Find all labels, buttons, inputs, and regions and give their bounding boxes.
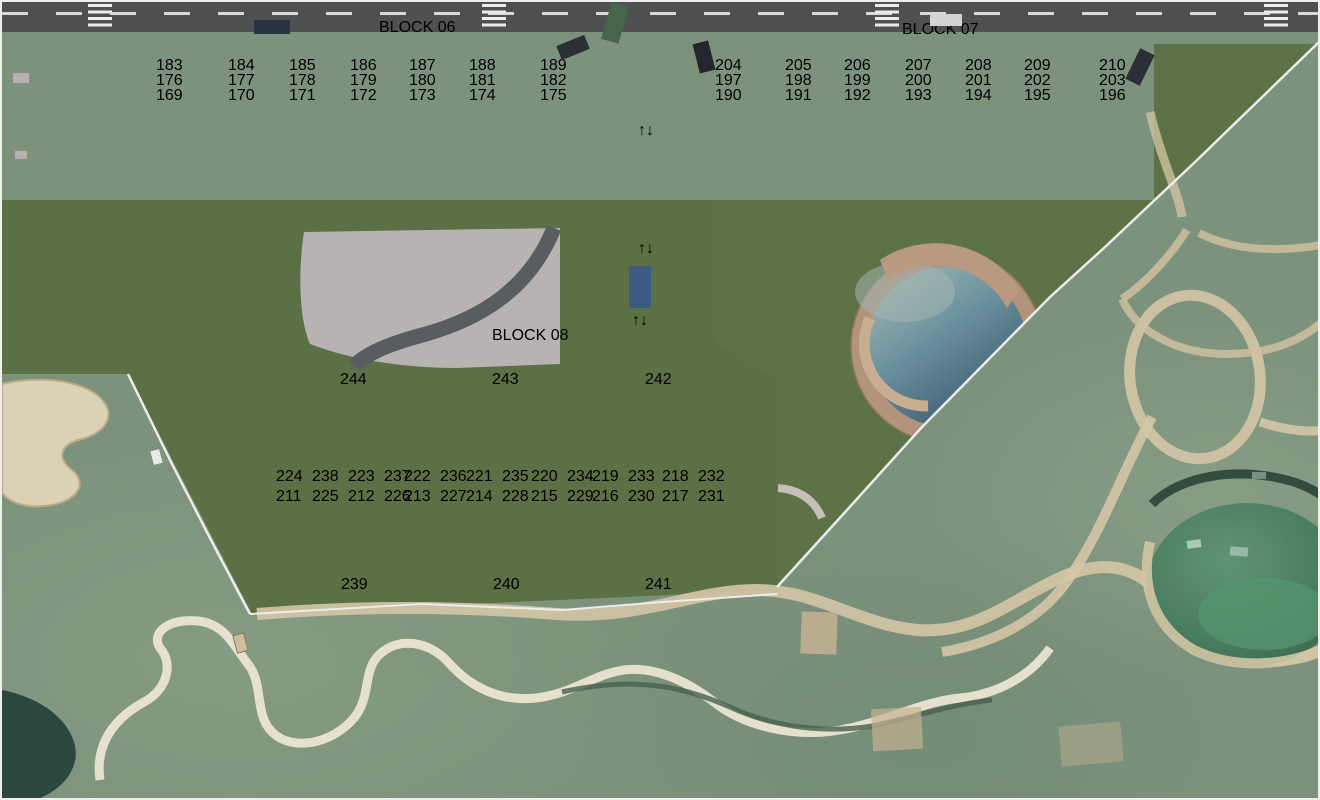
gym-equipment <box>390 242 393 255</box>
tree <box>123 169 141 187</box>
pedestrian <box>1242 49 1245 55</box>
palm-tree <box>1212 639 1244 671</box>
tree <box>265 35 291 61</box>
block-06-title: BLOCK 06 <box>379 19 455 37</box>
tree <box>0 19 21 41</box>
tree <box>156 352 172 368</box>
tree <box>351 33 377 59</box>
tree <box>420 586 440 606</box>
tree <box>1120 226 1148 254</box>
tree <box>1002 378 1026 402</box>
unit-chip-207[interactable]: 207 <box>905 57 939 70</box>
tree <box>570 598 590 618</box>
block07-roof-terraces <box>694 100 1156 164</box>
pedestrian <box>762 302 765 308</box>
tree <box>428 36 452 60</box>
unit-chip-195[interactable]: 195 <box>1024 87 1058 100</box>
walkway-hedge <box>336 473 364 493</box>
corner-pond <box>2 690 76 800</box>
tree <box>739 471 757 489</box>
site-plan-canvas[interactable]: ↑↓ ↑↓ ↑↓ BLOCK 06 BLOCK 07 BLOCK 08 183 <box>0 0 1320 800</box>
playground-slab <box>300 228 560 368</box>
tree <box>1157 87 1187 117</box>
tree <box>751 413 769 431</box>
pedestrian <box>884 47 887 53</box>
gym-equipment <box>522 282 530 285</box>
tree <box>142 380 162 400</box>
tree <box>1170 382 1194 406</box>
tree <box>1098 40 1122 64</box>
palm-tree <box>970 676 994 700</box>
umbrella-icon <box>1051 224 1073 246</box>
tree <box>186 460 206 480</box>
tree <box>184 32 212 60</box>
unit-chip-200[interactable]: 200 <box>905 72 939 85</box>
walkway-hedge <box>258 473 302 493</box>
tree <box>146 750 174 778</box>
unit-chip-243[interactable]: 243 <box>492 371 526 384</box>
main-road <box>2 2 1320 32</box>
pond-reflection <box>1230 546 1249 557</box>
umbrella-icon <box>966 227 988 249</box>
pedestrian <box>730 48 733 54</box>
pedestrian <box>642 137 645 143</box>
unit-chip-239[interactable]: 239 <box>341 576 375 589</box>
walkway-hedge <box>588 473 610 493</box>
tree <box>131 197 153 219</box>
block06-gardens <box>110 164 630 202</box>
umbrella-icon <box>797 229 819 251</box>
tree <box>1017 37 1043 63</box>
tree <box>140 782 164 800</box>
tee-box <box>1058 721 1123 766</box>
unit-chip-206[interactable]: 206 <box>844 57 878 70</box>
walkway-hedge <box>652 473 672 493</box>
sand-bunker <box>2 380 108 507</box>
palm-tree <box>439 738 473 772</box>
palm-tree <box>153 651 187 685</box>
unit-chip-204[interactable]: 204 <box>715 57 749 70</box>
neighbor-terrace <box>2 40 54 236</box>
tree <box>88 690 108 710</box>
tree <box>36 320 56 340</box>
unit-chip-172[interactable]: 172 <box>350 87 384 100</box>
unit-chip-241[interactable]: 241 <box>645 576 679 589</box>
tree <box>552 632 572 652</box>
tree <box>343 167 361 185</box>
tree <box>50 112 66 128</box>
tree <box>393 49 415 71</box>
umbrella-icon <box>779 351 801 373</box>
road-center-line <box>2 12 1320 15</box>
palm-tree <box>336 654 368 686</box>
cart-path <box>1260 422 1320 431</box>
sun-lounger <box>1034 236 1040 249</box>
tree <box>973 413 995 435</box>
tree <box>43 45 61 63</box>
unit-chip-182[interactable]: 182 <box>540 72 574 85</box>
unit-chip-181[interactable]: 181 <box>469 72 503 85</box>
padel-court <box>148 248 290 330</box>
unit-chip-198[interactable]: 198 <box>785 72 819 85</box>
tree <box>50 568 74 592</box>
tree <box>1270 132 1294 156</box>
block06-roof-terraces <box>110 100 630 164</box>
tree <box>183 205 201 223</box>
walkway-hedge <box>458 473 484 493</box>
block08-north-terraces <box>255 402 777 469</box>
tree <box>979 59 1001 81</box>
block08-north-row <box>255 380 777 469</box>
tree <box>775 206 793 224</box>
pedestrian <box>1124 48 1127 54</box>
block-08-title: BLOCK 08 <box>492 327 568 345</box>
tree <box>513 207 531 225</box>
crosswalk <box>88 4 112 30</box>
tree <box>878 514 898 534</box>
umbrella-icon <box>866 217 888 239</box>
tree <box>16 596 44 624</box>
tree <box>273 589 295 611</box>
tree <box>520 588 540 608</box>
unit-chip-192[interactable]: 192 <box>844 87 878 100</box>
unit-chip-242[interactable]: 242 <box>645 371 679 384</box>
unit-chip-197[interactable]: 197 <box>715 72 749 85</box>
gym-equipment <box>510 302 522 305</box>
unit-chip-175[interactable]: 175 <box>540 87 574 100</box>
block07-building <box>694 100 1156 202</box>
tree <box>1059 54 1081 76</box>
umbrella-icon <box>843 271 865 293</box>
tree <box>848 540 868 560</box>
crosswalk <box>875 4 899 30</box>
tree <box>941 444 963 466</box>
tee-box <box>871 707 923 752</box>
tree <box>10 238 34 262</box>
unit-chip-171[interactable]: 171 <box>289 87 323 100</box>
tree <box>822 200 842 220</box>
tree <box>1180 156 1208 184</box>
palm-tree <box>956 539 978 561</box>
unit-chip-169[interactable]: 169 <box>156 87 190 100</box>
unit-chip-176[interactable]: 176 <box>156 72 190 85</box>
unit-chip-190[interactable]: 190 <box>715 87 749 100</box>
terrace-furniture <box>14 150 28 160</box>
umbrella-icon <box>863 327 885 349</box>
palm-tree <box>757 688 787 718</box>
tree <box>1172 41 1204 73</box>
tree <box>1082 218 1106 242</box>
tree <box>553 169 571 187</box>
tree <box>1031 337 1057 363</box>
crosswalk <box>482 4 506 30</box>
pedestrian <box>702 352 705 358</box>
walkway-hedge <box>524 473 548 493</box>
tree <box>459 199 481 221</box>
unit-chip-180[interactable]: 180 <box>409 72 443 85</box>
block06-building <box>110 100 630 202</box>
umbrella-icon <box>857 379 879 401</box>
pedestrian <box>527 47 530 53</box>
pedestrian <box>317 46 320 52</box>
tree <box>322 582 342 602</box>
tree <box>1222 89 1254 121</box>
walkway-hedge <box>400 473 422 493</box>
avenue-crosswalk <box>620 204 696 224</box>
unit-chip-244[interactable]: 244 <box>340 371 374 384</box>
pedestrian <box>654 262 657 268</box>
unit-chip-194[interactable]: 194 <box>965 87 999 100</box>
pedestrian <box>1014 46 1017 52</box>
car <box>629 266 651 308</box>
sun-lounger <box>872 420 878 433</box>
tree <box>370 594 390 614</box>
tree <box>470 596 490 616</box>
palm-tree <box>1188 356 1216 384</box>
tree <box>5 289 27 311</box>
tree <box>620 590 640 610</box>
terrace-furniture <box>12 72 30 84</box>
tree <box>1211 59 1237 85</box>
unit-chip-173[interactable]: 173 <box>409 87 443 100</box>
tree <box>46 164 62 180</box>
umbrella-icon <box>789 299 811 321</box>
unit-chip-191[interactable]: 191 <box>785 87 819 100</box>
umbrella-icon <box>831 401 853 423</box>
unit-chip-179[interactable]: 179 <box>350 72 384 85</box>
tree <box>222 538 242 558</box>
tree <box>603 643 621 661</box>
unit-chip-193[interactable]: 193 <box>905 87 939 100</box>
lane-arrows: ↑↓ <box>638 240 654 258</box>
tree <box>1194 104 1220 130</box>
car <box>254 20 290 34</box>
palm-tree <box>1107 687 1133 713</box>
lane-arrows: ↑↓ <box>632 312 648 330</box>
pond-reflection <box>1252 472 1266 479</box>
tree <box>104 724 136 756</box>
umbrella-icon <box>999 228 1021 250</box>
pond-scrub <box>1152 474 1320 504</box>
gym-equipment <box>547 302 550 312</box>
crosswalk <box>1264 4 1288 30</box>
tree <box>1219 364 1245 390</box>
tree <box>103 34 131 62</box>
tree <box>206 500 226 520</box>
tree <box>711 593 729 611</box>
lane-arrows: ↑↓ <box>638 122 654 140</box>
unit-chip-189[interactable]: 189 <box>540 57 574 70</box>
pedestrian <box>152 47 155 53</box>
unit-chip-178[interactable]: 178 <box>289 72 323 85</box>
tree <box>239 199 261 221</box>
tree <box>226 50 250 74</box>
tree <box>291 207 309 225</box>
umbrella-icon <box>919 232 941 254</box>
tree <box>1151 191 1177 217</box>
unit-chip-188[interactable]: 188 <box>469 57 503 70</box>
tree <box>46 260 66 280</box>
block07-gardens <box>694 164 1156 202</box>
sun-lounger <box>947 224 953 237</box>
palm-tree <box>1277 677 1307 707</box>
tree <box>79 609 101 631</box>
umbrella-icon <box>903 423 925 445</box>
car <box>930 14 962 26</box>
umbrella-icon <box>897 261 919 283</box>
neighbor-pool <box>8 178 46 200</box>
tree <box>565 197 587 219</box>
unit-chip-196[interactable]: 196 <box>1099 87 1133 100</box>
sun-lounger <box>862 230 868 243</box>
tree <box>1300 28 1320 52</box>
tree <box>935 43 961 69</box>
tree <box>734 220 754 240</box>
tree <box>1250 30 1278 58</box>
tree <box>166 420 186 440</box>
tree <box>72 292 88 308</box>
tree <box>0 548 18 572</box>
unit-chip-174[interactable]: 174 <box>469 87 503 100</box>
tee-box <box>800 611 837 654</box>
tree <box>308 48 332 72</box>
tree <box>668 600 688 620</box>
cart-path <box>1199 233 1320 249</box>
unit-chip-170[interactable]: 170 <box>228 87 262 100</box>
unit-chip-202[interactable]: 202 <box>1024 72 1058 85</box>
tree <box>1262 72 1286 96</box>
unit-chip-199[interactable]: 199 <box>844 72 878 85</box>
tree <box>1062 303 1086 327</box>
tree <box>1297 75 1319 97</box>
tree <box>908 480 928 500</box>
tree <box>1091 267 1117 293</box>
gym-equipment <box>470 249 473 261</box>
gym-equipment <box>354 300 370 304</box>
unit-chip-205[interactable]: 205 <box>785 57 819 70</box>
block08-south-terraces <box>255 504 777 564</box>
gym-equipment <box>460 302 464 315</box>
